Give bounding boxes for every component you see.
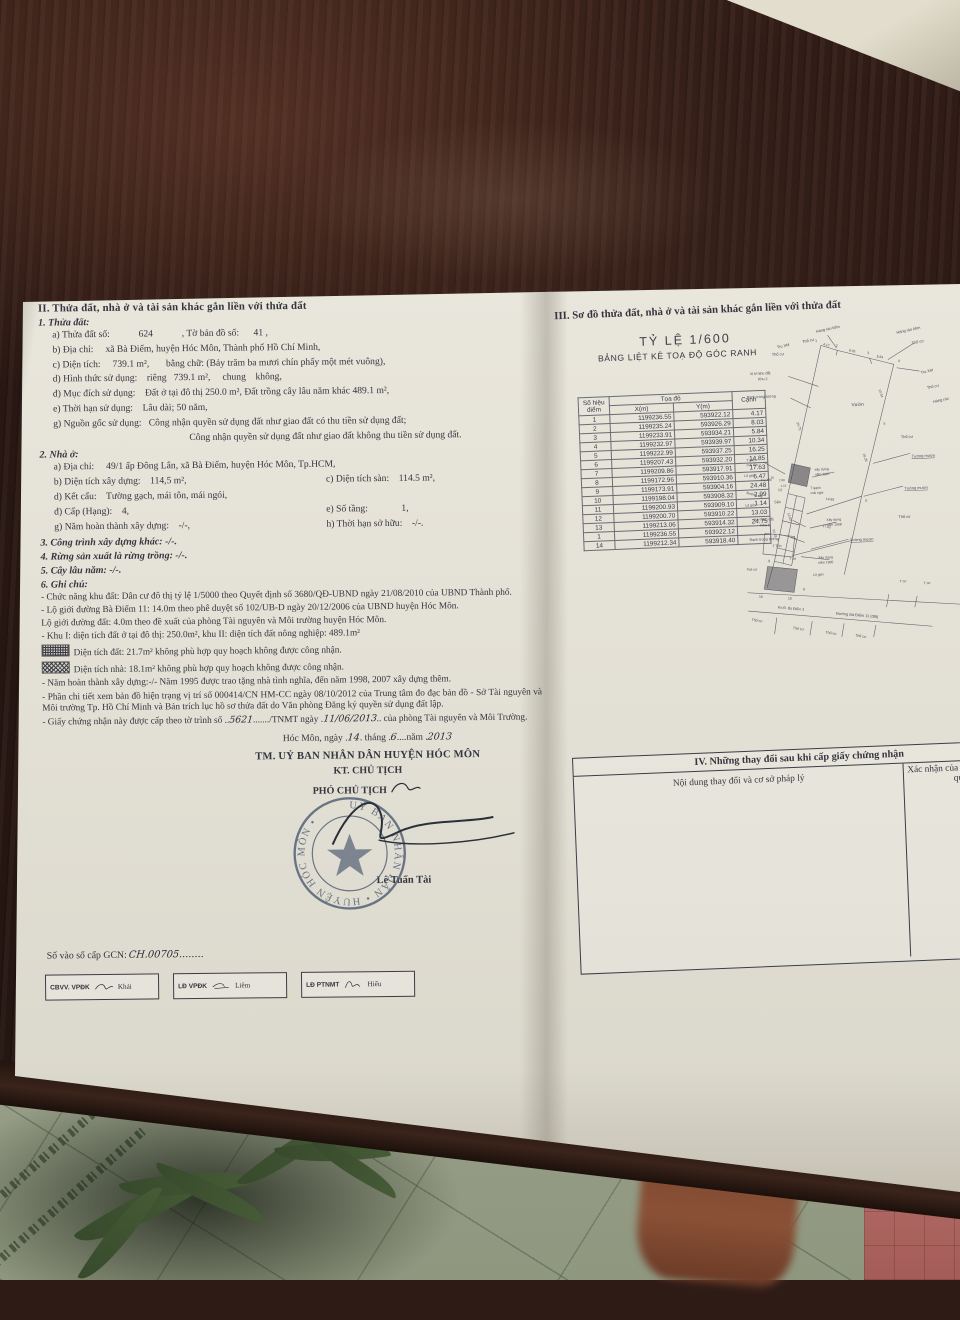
- map-label: Thổ cư: [926, 383, 939, 391]
- map-label: Trụ XM: [920, 367, 933, 375]
- map-label: Thổ cư: [802, 337, 815, 345]
- hatch-diagonal-swatch: [42, 662, 70, 674]
- light-glare: [300, 120, 720, 280]
- map-label: mái tôn: [747, 463, 758, 467]
- ownership-term-line: h) Thời hạn sở hữu: -/-.: [326, 516, 423, 532]
- map-label: Xây dựng: [818, 555, 833, 560]
- map-label: 5.84: [876, 354, 883, 359]
- map-label: 9: [768, 559, 770, 563]
- committee-line: TM. UỶ BAN NHÂN DÂN HUYỆN HÓC MÔN: [198, 748, 538, 763]
- cert-date-handwritten: 11/06/2013: [322, 713, 377, 725]
- map-label: Tường mượn: [904, 485, 928, 491]
- map-label: năm 1998: [827, 522, 842, 527]
- date-year-handwritten: 2013: [427, 731, 452, 742]
- box-name: Hiếu: [367, 980, 381, 988]
- map-label: T Tôn: [772, 544, 781, 548]
- map-label: Sân: [774, 500, 781, 504]
- map-label: T gạch: [810, 486, 821, 490]
- map-label: Lộ giới: [744, 474, 755, 478]
- box-label: CBVV. VPĐK: [50, 984, 90, 991]
- ink-signature: [318, 780, 529, 872]
- map-label: năm 2007: [815, 472, 830, 477]
- map-label: 13.03: [786, 512, 792, 521]
- map-label: Đường đất: [746, 491, 763, 499]
- photo-of-land-certificate: { "colors":{"wood":"#2e1b16","paper":"#e…: [0, 0, 960, 1280]
- map-label: Thổ cư: [855, 633, 867, 639]
- map-label: Hàng rào kẽm: [815, 324, 840, 334]
- storeys-line: e) Số tầng: 1,: [326, 502, 408, 518]
- point-id: 14: [584, 540, 615, 550]
- serial-number-line: Số vào sổ cấp GCN: CH.00705........: [47, 949, 205, 962]
- cert-mid: ......./TNMT ngày .: [253, 715, 323, 726]
- map-label: 8.03: [849, 348, 856, 353]
- land-certificate-document: II. Thửa đất, nhà ở và tài sản khác gắn …: [15, 278, 960, 1198]
- hatch-grid-swatch: [42, 645, 70, 657]
- map-label: T cư: [924, 581, 932, 585]
- section-iv-col1-header: Nội dung thay đổi và cơ sở pháp lý: [574, 764, 912, 970]
- y-coord: 593918.40: [679, 536, 738, 547]
- box-label: LĐ VPĐK: [178, 982, 207, 989]
- date-p3: ....năm .: [397, 731, 428, 742]
- build-area-line: b) Diện tích xây dựng: 114,5 m²,: [54, 473, 326, 491]
- map-label: 10: [770, 476, 774, 480]
- map-label: Thổ cư: [751, 618, 763, 624]
- map-label: Lộ giới: [745, 503, 756, 507]
- use-origin-line-2: Công nhận quyền sử dụng đất như giao đất…: [189, 427, 539, 445]
- map-label: Vườn: [851, 402, 864, 408]
- map-label: T gạch: [746, 458, 757, 462]
- map-label: 5: [883, 422, 885, 426]
- initial-signature: [342, 978, 364, 990]
- map-label: 4.17: [823, 342, 830, 347]
- map-label: 13: [778, 488, 782, 492]
- map-label: Thổ cư: [898, 514, 911, 520]
- map-label: năm 1995: [818, 560, 833, 565]
- map-label: 1.14: [781, 484, 787, 488]
- map-label: 8: [803, 587, 805, 591]
- note-map-reference: - Phần chi tiết xem bản đồ hiện trạng vị…: [42, 687, 542, 715]
- x-coord: 1199212.34: [615, 538, 679, 550]
- map-label: T cư: [900, 579, 908, 583]
- map-label: Vị trí khu đất: [753, 517, 774, 522]
- kt-chairman-line: KT. CHỦ TỊCH: [198, 763, 538, 778]
- initial-signature: [210, 980, 232, 992]
- map-label: Ranh trùng tường: [747, 394, 776, 399]
- map-label: 15: [788, 596, 792, 600]
- map-label: xây dựng: [815, 467, 829, 472]
- initial-box-ld-ptnmt: LĐ PTNMT Hiếu: [301, 971, 415, 998]
- map-label: Khu 1: [760, 523, 770, 527]
- note-land-not-recognized-text: Diện tích đất: 21.7m² không phù hợp quy …: [74, 646, 342, 659]
- date-day-handwritten: 14: [347, 732, 360, 743]
- map-label: 16.25: [862, 453, 868, 462]
- map-label: 4: [898, 359, 900, 363]
- map-label: Thổ cư: [772, 351, 785, 357]
- serial-label: Số vào sổ cấp GCN:: [47, 950, 127, 962]
- map-label: 6: [865, 499, 867, 503]
- map-label: Thổ cư: [901, 434, 914, 440]
- section-iv-box: IV. Những thay đổi sau khi cấp giấy chứn…: [572, 740, 960, 975]
- initial-box-ld-vpdk: LĐ VPĐK Liêm: [173, 972, 287, 999]
- date-p2: . tháng .: [360, 732, 391, 743]
- map-label: Tường mượn: [911, 453, 935, 459]
- cert-pre: - Giấy chứng nhận này được cấp theo tờ t…: [42, 716, 229, 728]
- map-label: Hàng rào kẽm: [896, 325, 921, 335]
- page-left: II. Thửa đất, nhà ở và tài sản khác gắn …: [38, 297, 546, 1082]
- initials-boxes: CBVV. VPĐK Khải LĐ VPĐK Liêm LĐ PTNMT Hi…: [45, 971, 415, 1001]
- box-name: Liêm: [235, 981, 250, 989]
- box-label: LĐ PTNMT: [306, 981, 339, 988]
- map-label: Đường Bà Điểm 11 (đất): [836, 611, 879, 620]
- map-label: mái ngói: [811, 491, 824, 496]
- map-label: Thổ cư: [746, 567, 758, 571]
- signature-block: Hóc Môn, ngày .14. tháng .6....năm .2013…: [197, 730, 539, 888]
- map-label: 2.99: [779, 478, 785, 482]
- map-label: 3: [867, 351, 869, 355]
- map-label: Xây dựng: [826, 517, 841, 522]
- box-name: Khải: [118, 983, 132, 991]
- map-label: Thổ cư: [911, 338, 924, 346]
- map-label: T cư: [789, 557, 797, 561]
- floor-area-line: c) Diện tích sàn: 114.5 m²,: [326, 472, 435, 488]
- map-label: Thổ cư: [825, 630, 837, 636]
- date-line: Hóc Môn, ngày .14. tháng .6....năm .2013: [197, 730, 537, 745]
- cert-post: .. của phòng Tài nguyên và Môi Trường.: [377, 713, 528, 725]
- map-label: 2: [836, 344, 838, 348]
- completion-year-line: g) Năm hoàn thành xây dựng: -/-,: [54, 517, 326, 535]
- map-label: Trụ XM: [776, 342, 789, 350]
- initial-signature: [93, 981, 115, 993]
- map-label: 1: [815, 339, 817, 343]
- map-label: Khu 2: [758, 377, 768, 381]
- parcel-sketch-map: Hàng rào kẽmThổ cưTrụ XM14.1728.0335.844…: [737, 309, 960, 643]
- section-iv-col2-header: Xác nhận của cơ quan có thẩm quyền: [904, 759, 960, 957]
- initial-box-cbvv-vpdk: CBVV. VPĐK Khải: [45, 973, 159, 1000]
- map-label: Hàng rào: [933, 396, 950, 404]
- map-label: 14.85: [826, 497, 835, 502]
- page-right: III. Sơ đồ thửa đất, nhà ở và tài sản kh…: [549, 264, 960, 1190]
- map-label: Tường mượn: [850, 536, 874, 542]
- map-label: Thổ cư: [793, 626, 805, 632]
- cert-number-handwritten: 5621: [229, 715, 254, 727]
- map-label: Vị trí khu đất: [750, 371, 771, 376]
- map-label: 24.75: [796, 422, 802, 431]
- map-label: Lộ giới: [813, 573, 824, 577]
- note-house-not-recognized-text: Diện tích nhà: 18.1m² không phù hợp quy …: [74, 663, 344, 676]
- hatched-house-road-reserve: [763, 565, 798, 593]
- map-label: Ra Đ. Bà Điểm 3: [778, 605, 805, 611]
- map-label: 16: [759, 595, 763, 599]
- date-p1: Hóc Môn, ngày .: [283, 732, 348, 744]
- col-point-header: Số hiệu điểm: [578, 397, 610, 416]
- serial-value-handwritten: CH.00705........: [129, 949, 205, 961]
- map-label: 10.34: [878, 389, 884, 398]
- hatched-building-2007: [788, 463, 812, 487]
